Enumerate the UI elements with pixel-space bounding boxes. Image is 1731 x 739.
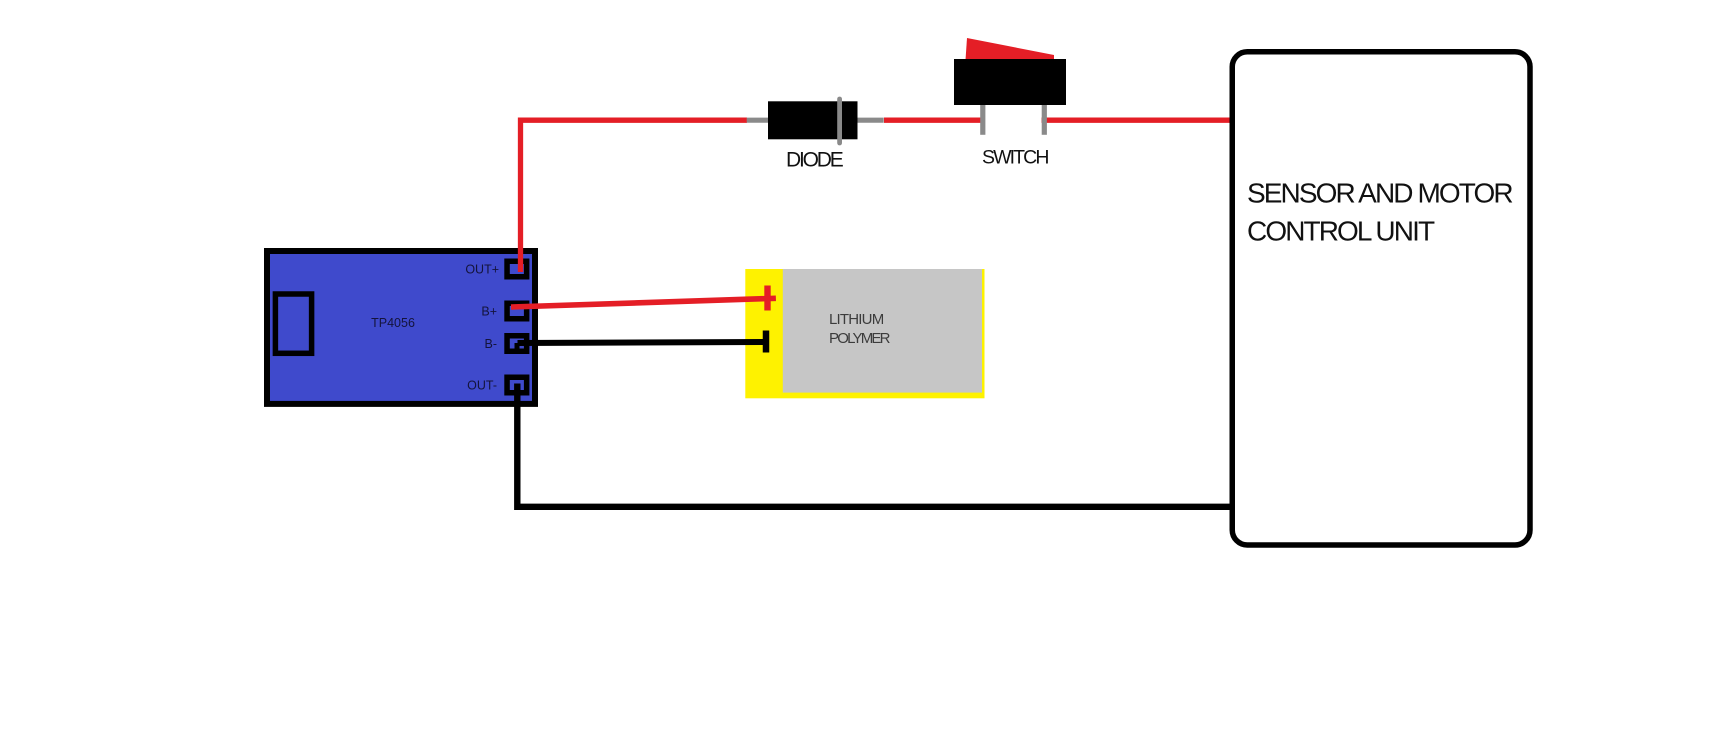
svg-text:B-: B-: [485, 337, 498, 351]
svg-text:B+: B+: [481, 305, 497, 319]
svg-text:OUT-: OUT-: [467, 379, 497, 393]
svg-text:SENSOR AND MOTOR: SENSOR AND MOTOR: [1247, 178, 1512, 209]
svg-text:DIODE: DIODE: [786, 149, 844, 172]
svg-text:TP4056: TP4056: [371, 316, 415, 330]
svg-text:CONTROL UNIT: CONTROL UNIT: [1247, 215, 1435, 246]
svg-text:LITHIUM: LITHIUM: [829, 311, 884, 328]
svg-text:POLYMER: POLYMER: [829, 330, 891, 347]
svg-text:OUT+: OUT+: [465, 263, 499, 277]
svg-text:SWITCH: SWITCH: [982, 147, 1048, 169]
